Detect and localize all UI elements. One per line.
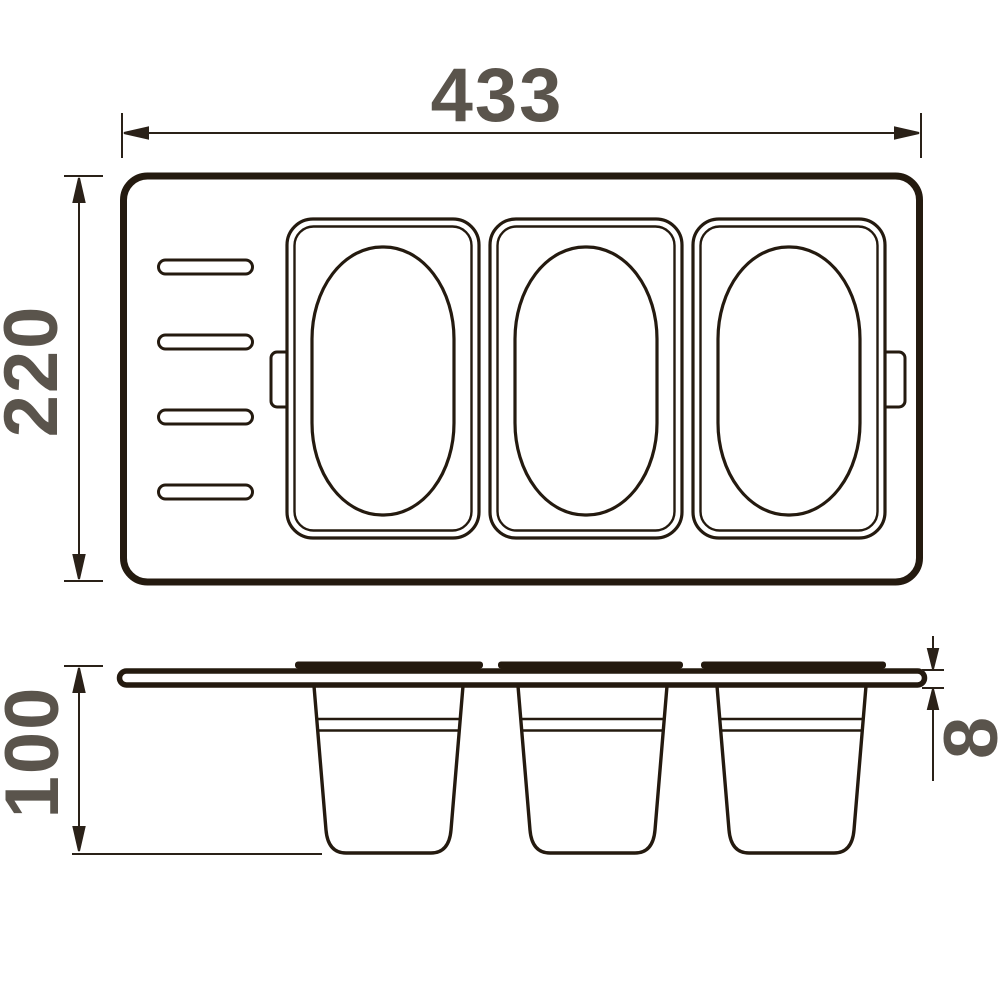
side-bin-3	[717, 686, 866, 853]
organizer-tray-drawing: 433 220 100 8	[0, 0, 1000, 1000]
top-plate	[120, 671, 925, 685]
dim-depth-arrow-top	[74, 178, 85, 202]
top-view	[124, 176, 920, 582]
side-bins	[314, 686, 866, 853]
dim-width-arrow-right	[895, 128, 919, 139]
rim-flanges	[295, 662, 886, 669]
rim-flange-3	[701, 662, 886, 669]
rim-flange-2	[498, 662, 683, 669]
dim-depth-arrow-bottom	[74, 555, 85, 579]
dim-width-label: 433	[431, 53, 564, 138]
dim-height-arrow-bottom	[74, 827, 85, 851]
technical-drawing-page: 433 220 100 8	[0, 0, 1000, 1000]
container-3-outer-rim	[693, 219, 885, 538]
dim-depth-label: 220	[0, 305, 74, 438]
side-bin-1	[314, 686, 463, 853]
dim-height-label: 100	[0, 686, 75, 819]
rim-flange-1	[295, 662, 483, 669]
dim-height-arrow-top	[74, 668, 85, 692]
dim-thickness-arrow-up	[928, 689, 938, 709]
dim-thickness-arrow-down	[928, 649, 938, 669]
side-view	[120, 662, 925, 854]
container-3	[693, 219, 885, 538]
container-1-outer-rim	[287, 219, 479, 538]
container-2	[490, 219, 682, 538]
container-1	[287, 219, 479, 538]
container-2-outer-rim	[490, 219, 682, 538]
dim-thickness-label: 8	[929, 715, 1000, 759]
dim-height	[64, 666, 322, 854]
dim-width-arrow-left	[124, 128, 148, 139]
side-bin-2	[518, 686, 667, 853]
